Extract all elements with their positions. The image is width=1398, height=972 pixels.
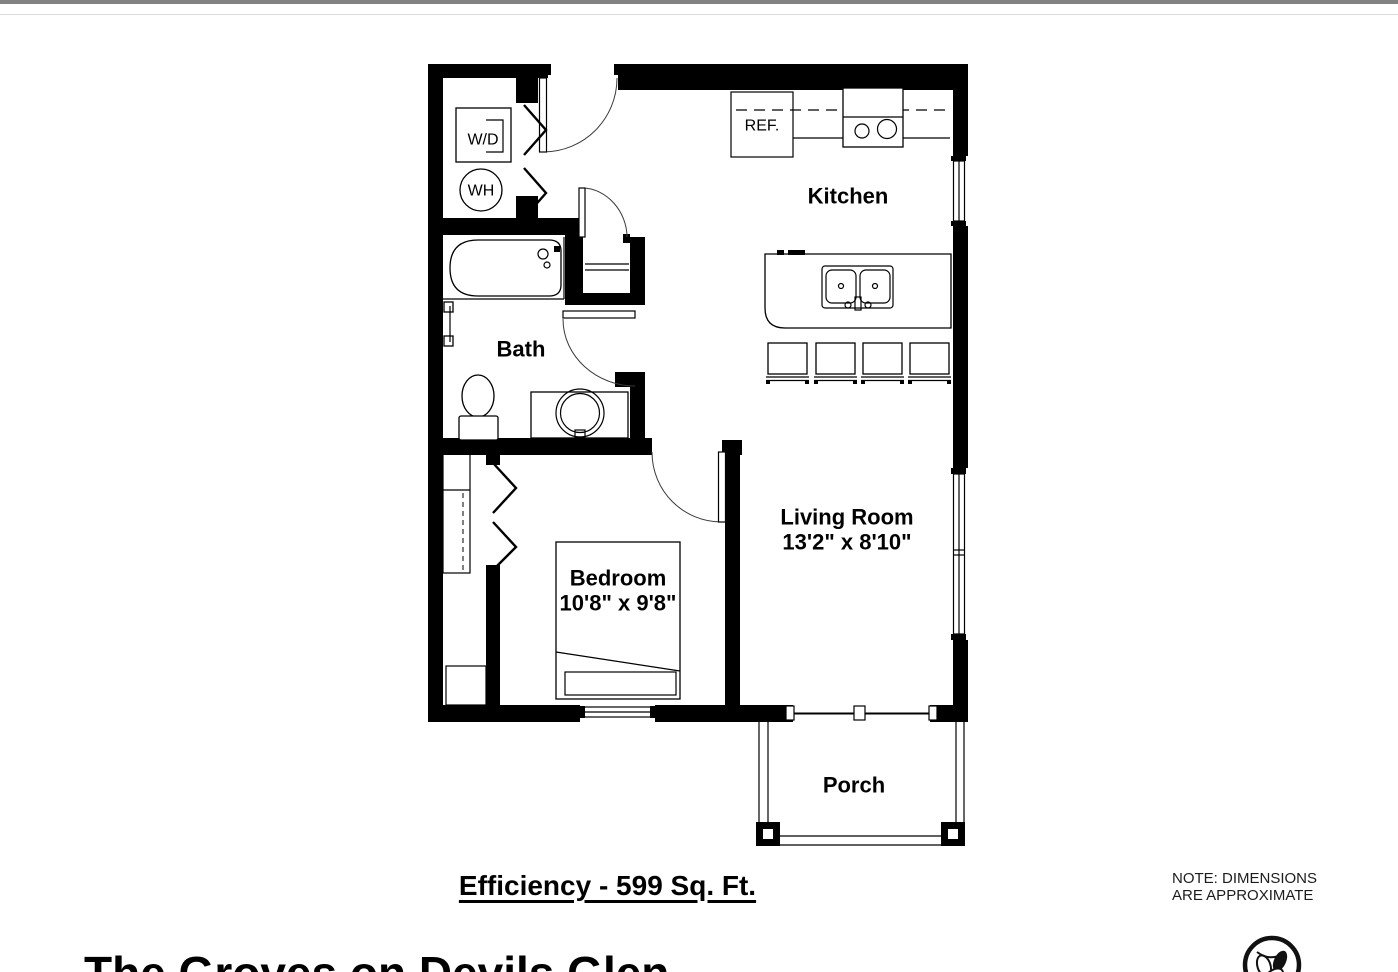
refrigerator-label: REF. — [745, 118, 780, 135]
plan-title: Efficiency - 599 Sq. Ft. — [420, 870, 795, 902]
toilet-tank — [459, 416, 498, 440]
linen-door-swing — [582, 188, 627, 237]
kitchen: REF. — [731, 88, 951, 384]
floor-plan-page: W/D WH REF. — [0, 0, 1398, 972]
wall-bottom-b — [655, 705, 793, 722]
wall-bath-north — [428, 218, 583, 235]
porch-post-left-core — [763, 829, 773, 839]
entry-door-swing — [543, 78, 617, 152]
wall-vanity-east — [630, 387, 645, 440]
bedroom-door — [652, 452, 726, 522]
kitchen-label: Kitchen — [808, 184, 889, 209]
towel-bar-bracket-top — [444, 302, 453, 312]
wall-linen-east — [630, 237, 645, 295]
dimensions-note-line2: ARE APPROXIMATE — [1172, 888, 1317, 905]
logo-ring — [1245, 938, 1299, 972]
living-room-window — [951, 468, 966, 640]
wall-closet-south — [486, 565, 500, 705]
bar-stools — [766, 343, 951, 384]
bedroom-label: Bedroom — [570, 566, 667, 591]
linen-closet — [579, 188, 629, 270]
kitchen-window-cap-top — [951, 156, 966, 161]
wall-top-right — [618, 64, 968, 90]
bath-label: Bath — [497, 337, 546, 362]
washer-dryer-label: W/D — [467, 132, 498, 149]
living-window-cap-bottom — [951, 634, 966, 640]
groves-leaf-logo-icon — [1240, 933, 1304, 972]
bedroom-door-swing — [652, 452, 722, 522]
jamb-wd-bifold-top — [516, 78, 538, 103]
kitchen-window — [951, 156, 966, 226]
doorstop-entry-left — [547, 64, 551, 75]
dimensions-note: NOTE: DIMENSIONS ARE APPROXIMATE — [1172, 871, 1317, 904]
doorstop-entry-right — [614, 64, 618, 75]
porch-door-center-post — [854, 706, 865, 720]
wall-right-b — [953, 226, 968, 468]
closet-bifold-upper — [493, 463, 516, 513]
dimensions-note-line1: NOTE: DIMENSIONS — [1172, 871, 1317, 888]
bathroom-vanity — [531, 392, 628, 438]
bath-door-leaf — [563, 311, 635, 318]
property-name: The Groves on Devils Glen — [84, 946, 669, 972]
towel-bar-bracket-bottom — [444, 336, 453, 346]
tub-spout — [554, 246, 560, 252]
closet-shelves — [443, 453, 470, 573]
porch-label: Porch — [823, 773, 885, 798]
porch-door-jamb-right — [929, 706, 937, 720]
wall-left — [428, 64, 443, 722]
wall-right-a — [953, 64, 968, 156]
bar-stool — [908, 343, 951, 384]
wall-linen-south — [565, 293, 645, 305]
bathtub — [450, 240, 561, 296]
bedroom-dimensions: 10'8" x 9'8" — [560, 591, 677, 616]
kitchen-window-cap-bottom — [951, 221, 966, 226]
walls — [428, 64, 968, 722]
bar-stool — [861, 343, 904, 384]
closet-bifold-lower — [493, 522, 516, 570]
wall-linen-west — [565, 235, 583, 295]
linen-door-leaf — [579, 188, 585, 237]
doorstop-bedroom-door — [648, 443, 652, 452]
bar-stool — [814, 343, 857, 384]
porch-post-right-core — [948, 829, 958, 839]
island-soap-dispenser — [777, 250, 784, 255]
bedroom-door-leaf — [719, 452, 726, 522]
living-room-label: Living Room — [780, 505, 913, 530]
entry-door — [540, 78, 618, 152]
wall-bottom-a — [428, 705, 580, 722]
toilet-bowl — [462, 375, 494, 417]
floor-plan-drawing: W/D WH REF. — [0, 0, 1398, 972]
nightstand — [446, 666, 486, 705]
bedroom-window — [579, 706, 656, 718]
bar-stool — [766, 343, 809, 384]
living-room-dimensions: 13'2" x 8'10" — [782, 530, 911, 555]
island-faucet-base — [788, 250, 805, 255]
living-window-cap-top — [951, 468, 966, 474]
entry-door-leaf — [540, 78, 547, 152]
kitchen-island — [765, 254, 951, 328]
wall-bedroom-living-divider — [725, 440, 740, 722]
porch-door-jamb-left — [786, 706, 794, 720]
wall-top-left — [428, 64, 548, 78]
water-heater-label: WH — [468, 183, 495, 200]
